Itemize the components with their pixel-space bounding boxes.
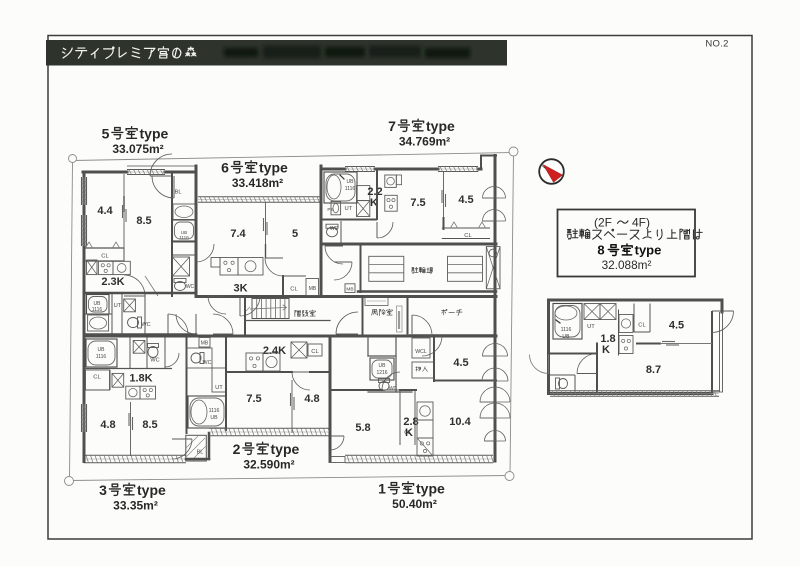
svg-text:K: K bbox=[602, 344, 610, 356]
svg-text:MB: MB bbox=[346, 287, 353, 293]
svg-text:WC: WC bbox=[186, 284, 195, 290]
svg-text:5.8: 5.8 bbox=[355, 422, 370, 434]
svg-text:7.4: 7.4 bbox=[230, 228, 246, 240]
svg-text:3K: 3K bbox=[233, 283, 247, 295]
svg-text:1116: 1116 bbox=[179, 235, 189, 240]
svg-text:PS: PS bbox=[327, 207, 333, 212]
svg-text:UB: UB bbox=[98, 347, 106, 353]
svg-text:32.088m²: 32.088m² bbox=[602, 258, 652, 272]
svg-text:type: type bbox=[271, 441, 300, 457]
svg-text:2.4K: 2.4K bbox=[263, 345, 286, 357]
svg-text:1116: 1116 bbox=[209, 408, 220, 414]
svg-text:CL: CL bbox=[464, 233, 472, 239]
svg-text:type: type bbox=[416, 481, 445, 497]
svg-text:34.769m²: 34.769m² bbox=[399, 135, 450, 149]
svg-text:1: 1 bbox=[378, 481, 386, 497]
svg-text:1116: 1116 bbox=[345, 186, 356, 192]
svg-text:type: type bbox=[140, 126, 169, 142]
svg-text:CL: CL bbox=[93, 375, 101, 381]
svg-text:5: 5 bbox=[102, 126, 110, 142]
svg-text:K: K bbox=[405, 427, 413, 439]
svg-text:4.4: 4.4 bbox=[97, 205, 113, 217]
svg-text:2: 2 bbox=[233, 441, 241, 457]
svg-text:6: 6 bbox=[221, 160, 229, 176]
svg-text:1216: 1216 bbox=[376, 370, 387, 376]
svg-text:UT: UT bbox=[587, 324, 595, 330]
svg-text:33.35m²: 33.35m² bbox=[113, 499, 158, 513]
svg-text:UT: UT bbox=[114, 303, 122, 309]
svg-text:1116: 1116 bbox=[96, 354, 107, 360]
svg-text:type: type bbox=[635, 243, 662, 258]
svg-text:8.5: 8.5 bbox=[136, 215, 151, 227]
svg-text:type: type bbox=[137, 482, 166, 498]
svg-text:BL: BL bbox=[174, 190, 182, 196]
svg-text:33.075m²: 33.075m² bbox=[112, 142, 163, 156]
svg-text:1116: 1116 bbox=[561, 327, 572, 333]
svg-text:8.7: 8.7 bbox=[646, 364, 661, 376]
svg-text:WC: WC bbox=[330, 226, 339, 232]
svg-text:CL: CL bbox=[290, 287, 298, 293]
svg-text:NO.2: NO.2 bbox=[705, 39, 728, 50]
svg-text:10.4: 10.4 bbox=[449, 416, 471, 428]
svg-text:1.8K: 1.8K bbox=[129, 373, 152, 385]
svg-text:8: 8 bbox=[597, 243, 604, 258]
svg-text:33.418m²: 33.418m² bbox=[232, 176, 283, 190]
svg-text:4.8: 4.8 bbox=[304, 393, 319, 405]
svg-text:2.3K: 2.3K bbox=[101, 276, 124, 288]
svg-text:UB: UB bbox=[379, 363, 387, 369]
svg-text:7: 7 bbox=[388, 118, 396, 134]
svg-text:type: type bbox=[259, 160, 288, 176]
svg-text:7.5: 7.5 bbox=[410, 197, 425, 209]
svg-text:UB: UB bbox=[347, 179, 355, 185]
svg-text:UB: UB bbox=[210, 415, 218, 421]
svg-text:4.5: 4.5 bbox=[458, 194, 473, 206]
svg-text:CL: CL bbox=[638, 323, 646, 329]
svg-text:4.8: 4.8 bbox=[100, 419, 115, 431]
svg-text:4.5: 4.5 bbox=[453, 357, 468, 369]
svg-text:UT: UT bbox=[345, 206, 353, 212]
svg-text:type: type bbox=[426, 118, 455, 134]
svg-text:UT: UT bbox=[215, 385, 223, 391]
svg-text:BL: BL bbox=[197, 450, 204, 456]
svg-text:5: 5 bbox=[292, 228, 298, 240]
svg-text:7.5: 7.5 bbox=[246, 393, 261, 405]
svg-text:(2F: (2F bbox=[594, 216, 612, 230]
svg-text:8.5: 8.5 bbox=[142, 419, 157, 431]
svg-text:CL: CL bbox=[101, 254, 109, 260]
svg-text:50.40m²: 50.40m² bbox=[392, 497, 437, 511]
svg-text:4F): 4F) bbox=[632, 216, 650, 230]
svg-text:MB: MB bbox=[309, 286, 317, 292]
svg-text:MB: MB bbox=[201, 341, 209, 347]
svg-text:WC: WC bbox=[141, 322, 150, 328]
svg-text:1116: 1116 bbox=[92, 307, 103, 313]
svg-text:3: 3 bbox=[99, 482, 107, 498]
svg-text:WCL: WCL bbox=[415, 349, 427, 355]
svg-text:32.590m²: 32.590m² bbox=[243, 458, 294, 472]
svg-text:CL: CL bbox=[311, 349, 319, 355]
svg-text:WC: WC bbox=[203, 360, 212, 366]
svg-text:WC: WC bbox=[150, 358, 159, 364]
svg-text:UB: UB bbox=[562, 334, 570, 340]
svg-text:4.5: 4.5 bbox=[669, 320, 684, 332]
